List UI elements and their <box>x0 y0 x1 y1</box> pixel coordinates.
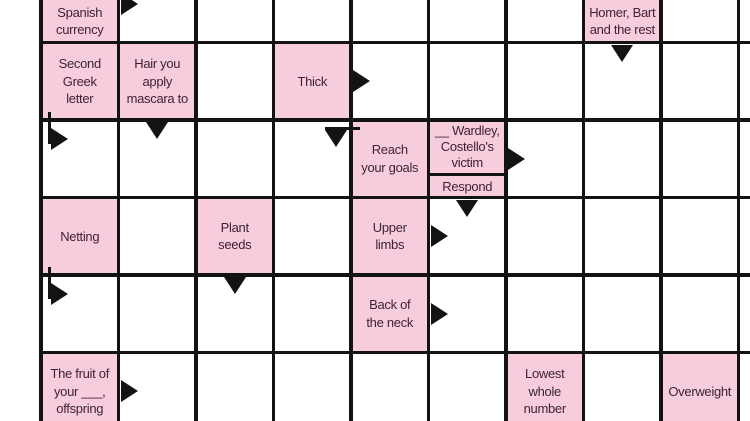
clue-cell: Netting <box>41 198 119 276</box>
clue-text: Back of the neck <box>364 295 415 332</box>
answer-cell[interactable] <box>274 275 352 353</box>
clue-cell: Thick <box>274 43 352 121</box>
across-arrow-icon <box>431 225 448 247</box>
clue-cell: Hair you apply mascara to <box>119 43 197 121</box>
bent-across-arrow-icon <box>51 128 68 150</box>
grid-line <box>39 196 750 200</box>
answer-cell[interactable] <box>584 120 662 198</box>
clue-text: Homer, Bart and the rest <box>587 3 657 43</box>
puzzle-grid: Spanish currencyHomer, Bart and the rest… <box>0 0 750 421</box>
across-arrow-icon <box>508 148 525 170</box>
clue-section-bottom: Respond <box>429 176 507 197</box>
grid-line <box>39 273 750 277</box>
clue-cell: Second Greek letter <box>41 43 119 121</box>
answer-cell[interactable] <box>196 43 274 121</box>
answer-cell[interactable] <box>429 353 507 421</box>
across-arrow-icon <box>121 380 138 402</box>
clue-text: Reach your goals <box>359 140 420 177</box>
across-arrow-icon <box>353 70 370 92</box>
answer-cell[interactable] <box>584 353 662 421</box>
answer-cell[interactable] <box>661 275 739 353</box>
clue-text: Lowest whole number <box>522 364 568 419</box>
clue-cell: __ Wardley, Costello's victimRespond <box>429 120 507 198</box>
clue-cell: Overweight <box>661 353 739 421</box>
clue-cell: Reach your goals <box>351 120 429 198</box>
down-arrow-icon <box>146 122 168 139</box>
answer-cell[interactable] <box>196 353 274 421</box>
answer-cell[interactable] <box>584 198 662 276</box>
down-arrow-icon <box>611 45 633 62</box>
answer-cell[interactable] <box>274 198 352 276</box>
answer-cell[interactable] <box>506 43 584 121</box>
answer-cell[interactable] <box>274 353 352 421</box>
grid-line <box>39 0 43 421</box>
answer-cell[interactable] <box>661 120 739 198</box>
down-arrow-icon <box>456 200 478 217</box>
answer-cell[interactable] <box>584 275 662 353</box>
down-arrow-icon <box>224 277 246 294</box>
grid-line <box>349 0 353 421</box>
answer-cell[interactable] <box>661 0 739 43</box>
clue-text: Hair you apply mascara to <box>125 54 190 109</box>
grid-line <box>659 0 663 421</box>
answer-cell[interactable] <box>661 198 739 276</box>
clue-cell: Upper limbs <box>351 198 429 276</box>
clue-text: Upper limbs <box>371 218 409 255</box>
answer-cell[interactable] <box>506 275 584 353</box>
answer-cell[interactable] <box>429 43 507 121</box>
across-arrow-icon <box>121 0 138 15</box>
answer-cell[interactable] <box>119 198 197 276</box>
bent-down-arrow-icon <box>325 130 347 147</box>
answer-cell[interactable] <box>274 0 352 43</box>
clue-text: Netting <box>58 227 101 247</box>
answer-cell[interactable] <box>506 198 584 276</box>
clue-text: The fruit of your ___, offspring <box>48 364 111 419</box>
grid-line <box>194 0 198 421</box>
clue-cell: Lowest whole number <box>506 353 584 421</box>
clue-text: Second Greek letter <box>57 54 103 109</box>
clue-section-top: __ Wardley, Costello's victim <box>429 120 507 173</box>
clue-text: Respond <box>440 177 494 197</box>
clue-cell: Homer, Bart and the rest <box>584 0 662 43</box>
clue-text: Spanish currency <box>54 3 105 43</box>
answer-cell[interactable] <box>351 353 429 421</box>
grid-line <box>427 0 431 421</box>
answer-cell[interactable] <box>506 0 584 43</box>
clue-text: Plant seeds <box>216 218 253 255</box>
answer-cell[interactable] <box>196 0 274 43</box>
grid-line <box>117 0 121 421</box>
clue-cell: The fruit of your ___, offspring <box>41 353 119 421</box>
across-arrow-icon <box>431 303 448 325</box>
clue-cell: Spanish currency <box>41 0 119 43</box>
clue-cell: Back of the neck <box>351 275 429 353</box>
answer-cell[interactable] <box>119 275 197 353</box>
grid-line <box>272 0 276 421</box>
answer-cell[interactable] <box>661 43 739 121</box>
answer-cell[interactable] <box>429 0 507 43</box>
grid-line <box>582 0 586 421</box>
grid-line <box>39 351 750 355</box>
bent-across-arrow-icon <box>51 283 68 305</box>
clue-cell: Plant seeds <box>196 198 274 276</box>
clue-text: __ Wardley, Costello's victim <box>433 122 502 172</box>
grid-line <box>504 0 508 421</box>
grid-line <box>39 41 750 45</box>
clue-text: Thick <box>295 72 329 92</box>
answer-cell[interactable] <box>351 0 429 43</box>
answer-cell[interactable] <box>196 120 274 198</box>
grid-line <box>737 0 741 421</box>
clue-text: Overweight <box>666 382 733 402</box>
